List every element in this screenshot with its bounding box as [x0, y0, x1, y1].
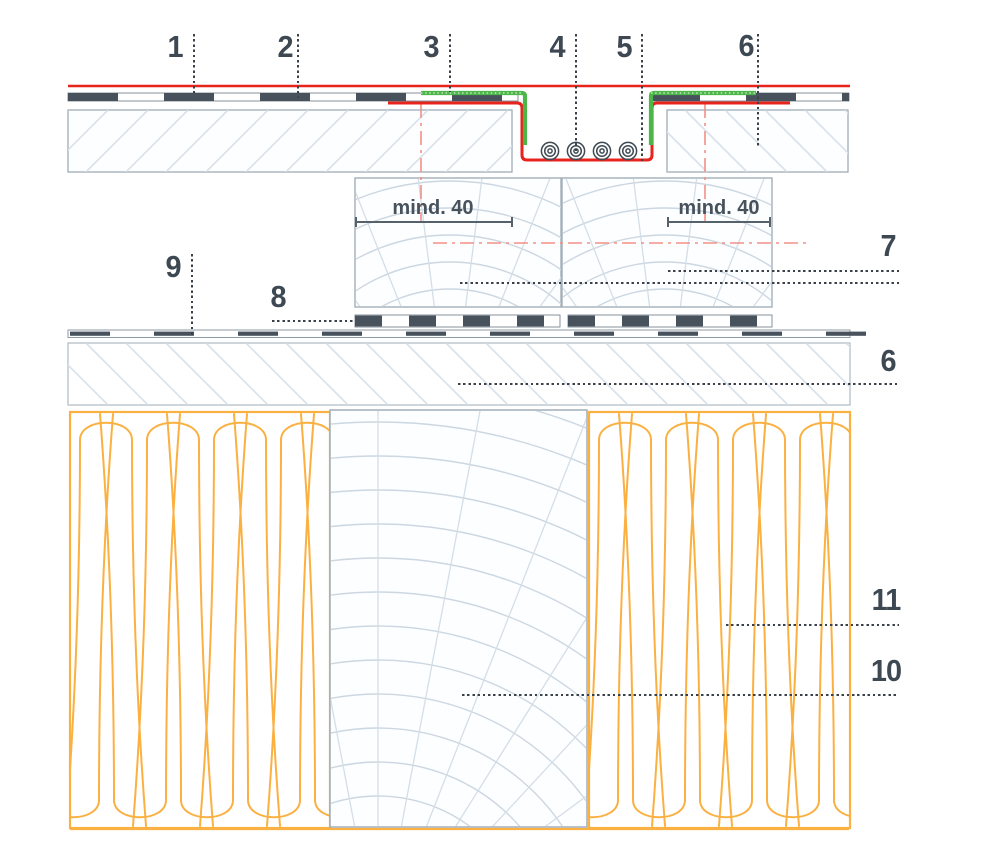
detail-drawing-canvas: mind. 40 mind. 40 12345678961110	[0, 0, 992, 846]
vapour-membrane-layer	[68, 330, 866, 338]
battens-layer	[355, 315, 772, 327]
mineral-wool-right	[552, 412, 900, 828]
substrate-hatch-layer	[0, 343, 948, 405]
construction-detail-svg: mind. 40 mind. 40	[0, 0, 992, 846]
mineral-wool-left	[33, 412, 381, 828]
dimension-label-right: mind. 40	[678, 197, 759, 219]
insulation-panel-right	[565, 110, 947, 172]
dimension-label-left: mind. 40	[392, 197, 473, 219]
fastener-circles	[541, 142, 636, 159]
insulation-panel-left	[0, 110, 628, 172]
